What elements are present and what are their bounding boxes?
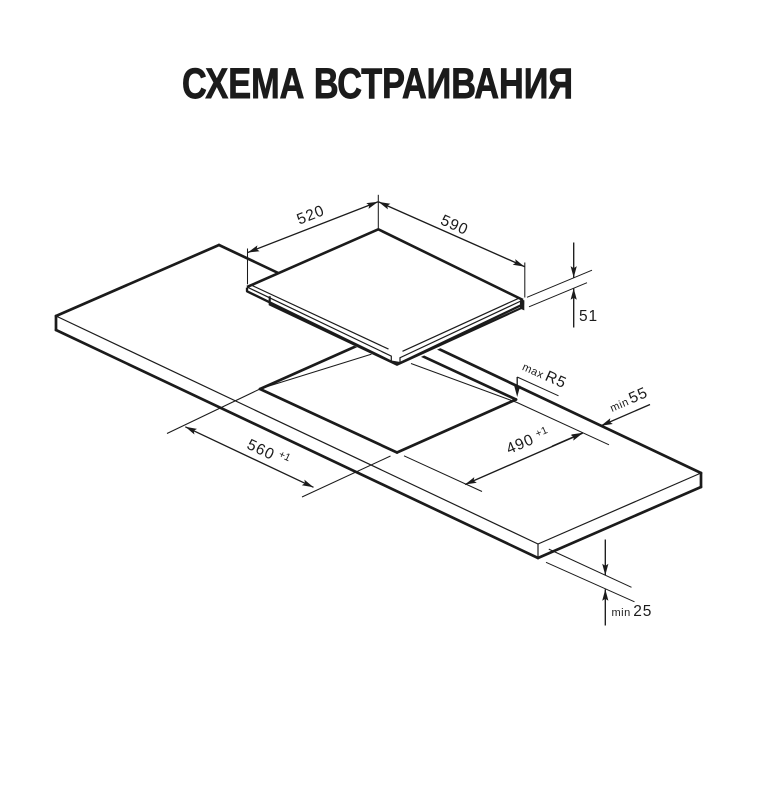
svg-text:51: 51 bbox=[579, 308, 598, 325]
svg-text:СХЕМА ВСТРАИВАНИЯ: СХЕМА ВСТРАИВАНИЯ bbox=[182, 60, 573, 108]
